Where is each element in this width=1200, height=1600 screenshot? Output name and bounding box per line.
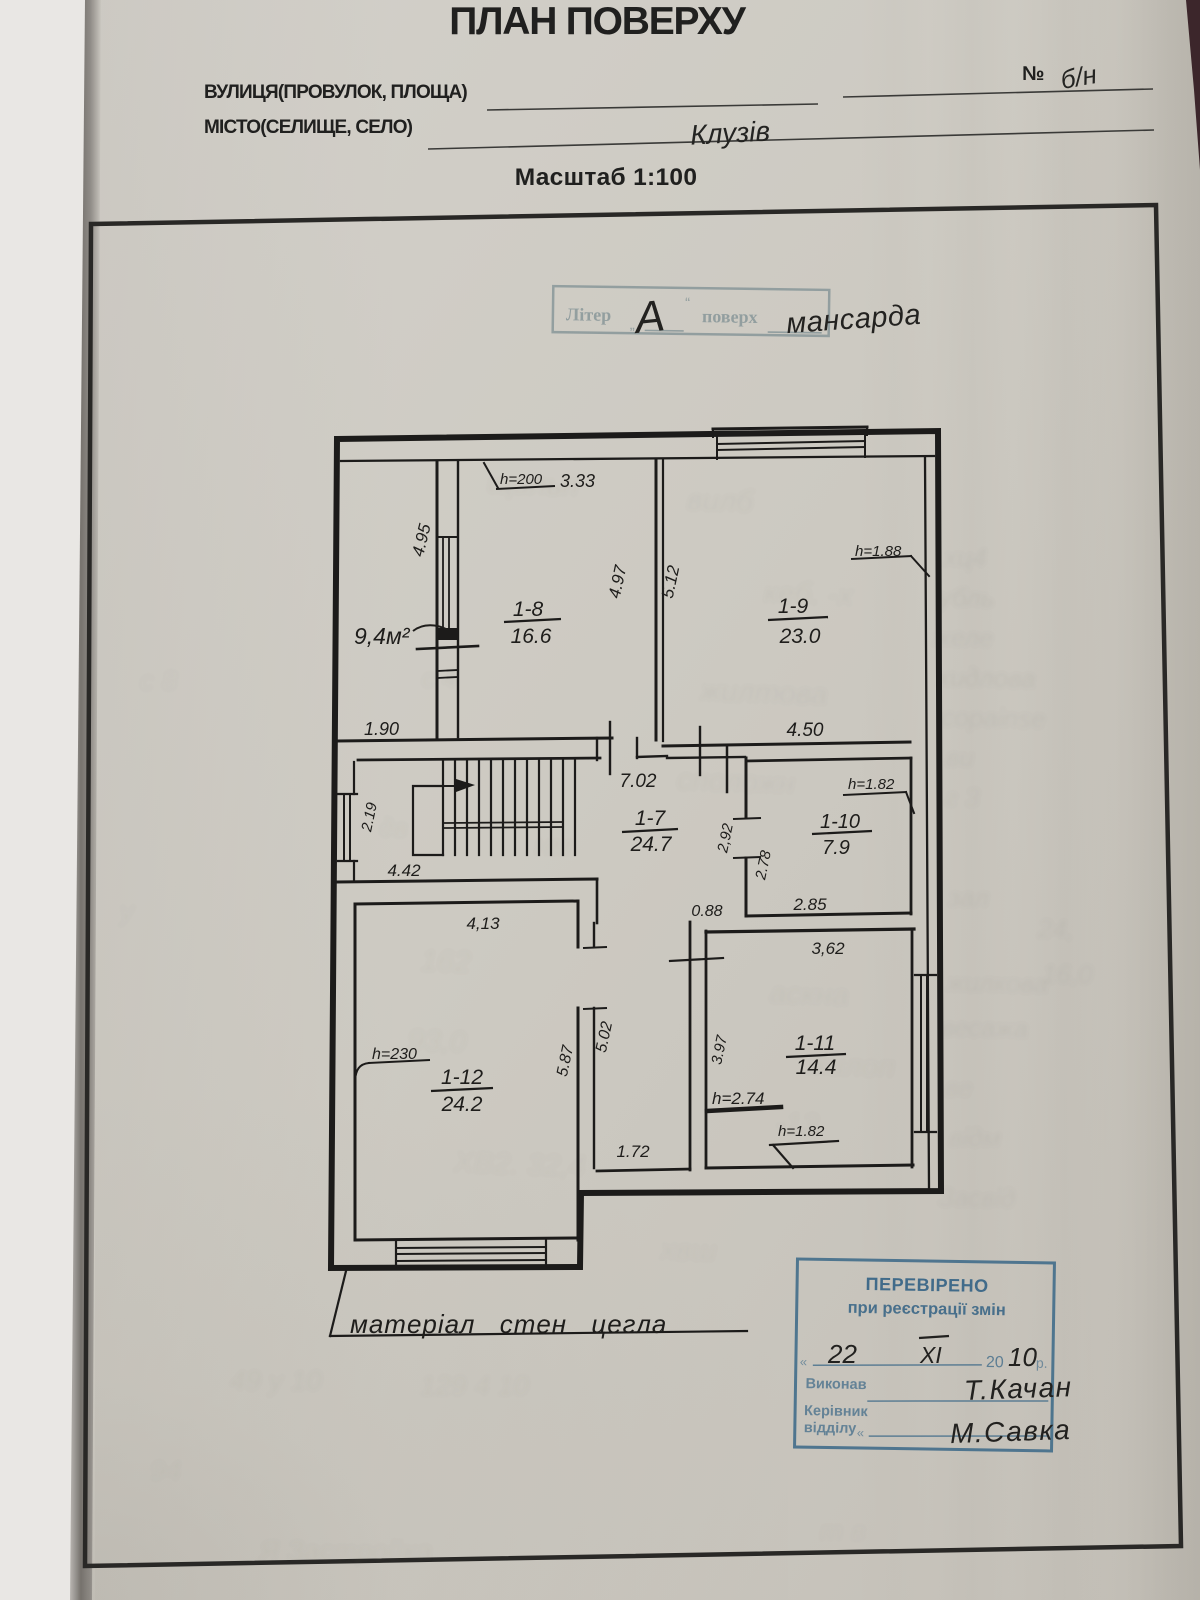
svg-text:ПЛАН ПОВЕРХУ: ПЛАН ПОВЕРХУ <box>449 0 746 43</box>
svg-text:1-7: 1-7 <box>635 807 667 830</box>
svg-text:1-9: 1-9 <box>778 595 809 618</box>
svg-text:1.72: 1.72 <box>616 1142 650 1161</box>
svg-text:Керівник: Керівник <box>804 1403 869 1420</box>
svg-text:23.0: 23.0 <box>779 625 821 648</box>
svg-text:хвш: хвш <box>658 1233 717 1268</box>
svg-text:24.7: 24.7 <box>630 833 673 856</box>
svg-text:h=230: h=230 <box>372 1046 417 1063</box>
svg-text:1-12: 1-12 <box>441 1066 483 1089</box>
svg-text:поверх: поверх <box>702 306 758 327</box>
svg-text:весажа: весажа <box>941 1012 1028 1044</box>
svg-text:16,0: 16,0 <box>1042 959 1094 990</box>
svg-text:2.85: 2.85 <box>792 895 827 914</box>
svg-text:„: „ <box>630 316 635 333</box>
svg-text:129 4 10: 129 4 10 <box>420 1370 529 1401</box>
svg-text:h=1.88: h=1.88 <box>855 543 902 560</box>
svg-text:7.9: 7.9 <box>822 837 850 859</box>
svg-text:ве: ве <box>945 1072 973 1102</box>
svg-text:xц4: xц4 <box>942 542 987 573</box>
svg-text:с 8: с 8 <box>140 665 178 696</box>
svg-text:б/н: б/н <box>1058 59 1099 95</box>
svg-text:h=1.82: h=1.82 <box>848 776 895 793</box>
svg-text:сположн: сположн <box>677 763 796 800</box>
svg-text:«: « <box>857 1425 864 1440</box>
svg-text:відм: відм <box>949 1122 1001 1153</box>
svg-text:аскна: аскна <box>769 977 849 1013</box>
svg-text:94: 94 <box>150 1455 181 1486</box>
svg-text:відділу: відділу <box>804 1420 857 1437</box>
svg-text:зал: зал <box>947 882 989 913</box>
svg-text:убль: убль <box>936 582 994 613</box>
svg-text:4.42: 4.42 <box>387 861 421 880</box>
svg-text:h=1.82: h=1.82 <box>778 1123 825 1140</box>
svg-text:№: № <box>1022 63 1044 85</box>
svg-text:р.: р. <box>1036 1355 1048 1371</box>
svg-text:хидлова: хидлова <box>935 662 1036 694</box>
svg-text:3.33: 3.33 <box>560 471 595 491</box>
svg-text:Масштаб 1:100: Масштаб 1:100 <box>515 164 698 191</box>
svg-text:h=2.74: h=2.74 <box>712 1089 764 1108</box>
svg-text:24,: 24, <box>1037 914 1075 945</box>
svg-text:соpainsе: соpainsе <box>941 702 1046 734</box>
svg-text:при реєстрації змін: при реєстрації змін <box>848 1299 1006 1319</box>
svg-text:0.88: 0.88 <box>691 903 722 920</box>
svg-text:Клузів: Клузів <box>689 115 770 150</box>
svg-text:162: 162 <box>420 944 471 979</box>
svg-text:матеріал стен цегла: матеріал стен цегла <box>350 1309 667 1339</box>
svg-text:49 у 10: 49 у 10 <box>230 1365 322 1396</box>
svg-text:Я Застройка: Я Застройка <box>258 1535 432 1566</box>
svg-text:ви: ви <box>946 742 975 772</box>
svg-text:10: 10 <box>1008 1342 1037 1372</box>
svg-text:Літер: Літер <box>566 304 612 325</box>
svg-text:1.90: 1.90 <box>364 719 399 739</box>
svg-text:жилкова: жилкова <box>946 967 1049 999</box>
svg-text:20: 20 <box>986 1354 1004 1371</box>
svg-text:ВУЛИЦЯ(ПРОВУЛОК, ПЛОЩА): ВУЛИЦЯ(ПРОВУЛОК, ПЛОЩА) <box>204 82 467 103</box>
svg-text:1-11: 1-11 <box>795 1032 835 1055</box>
svg-text:т в: т в <box>820 1515 866 1546</box>
svg-text:у: у <box>118 895 136 926</box>
svg-text:Т.Качан: Т.Качан <box>963 1371 1073 1406</box>
svg-text:22: 22 <box>827 1339 857 1369</box>
svg-text:“: “ <box>685 295 690 312</box>
svg-text:7.02: 7.02 <box>620 771 657 792</box>
svg-text:1-8: 1-8 <box>513 598 544 621</box>
svg-text:14.4: 14.4 <box>796 1056 837 1079</box>
svg-text:М.Савка: М.Савка <box>949 1414 1071 1449</box>
svg-text:9,4м²: 9,4м² <box>354 623 411 649</box>
svg-text:«: « <box>800 1354 807 1369</box>
svg-text:Засвід: Засвід <box>938 1182 1016 1213</box>
svg-text:24.2: 24.2 <box>441 1093 483 1116</box>
svg-text:1-10: 1-10 <box>820 811 860 833</box>
svg-text:XI: XI <box>919 1342 942 1368</box>
svg-text:МІСТО(СЕЛИЩЕ, СЕЛО): МІСТО(СЕЛИЩЕ, СЕЛО) <box>204 117 413 138</box>
svg-text:4.50: 4.50 <box>787 720 824 741</box>
svg-text:h=200: h=200 <box>500 471 543 488</box>
svg-text:4,13: 4,13 <box>466 914 500 933</box>
svg-text:г 3: г 3 <box>945 782 981 813</box>
svg-text:16.6: 16.6 <box>511 625 552 648</box>
svg-text:ПЕРЕВІРЕНО: ПЕРЕВІРЕНО <box>865 1274 988 1296</box>
svg-text:ХВ2. 32,4: ХВ2. 32,4 <box>452 1146 586 1184</box>
svg-text:жилтова: жилтова <box>698 674 828 711</box>
svg-text:дв: дв <box>379 812 407 842</box>
svg-text:Виконав: Виконав <box>805 1376 866 1393</box>
svg-text:3,62: 3,62 <box>811 939 845 958</box>
svg-text:вилб: вилб <box>686 483 754 518</box>
